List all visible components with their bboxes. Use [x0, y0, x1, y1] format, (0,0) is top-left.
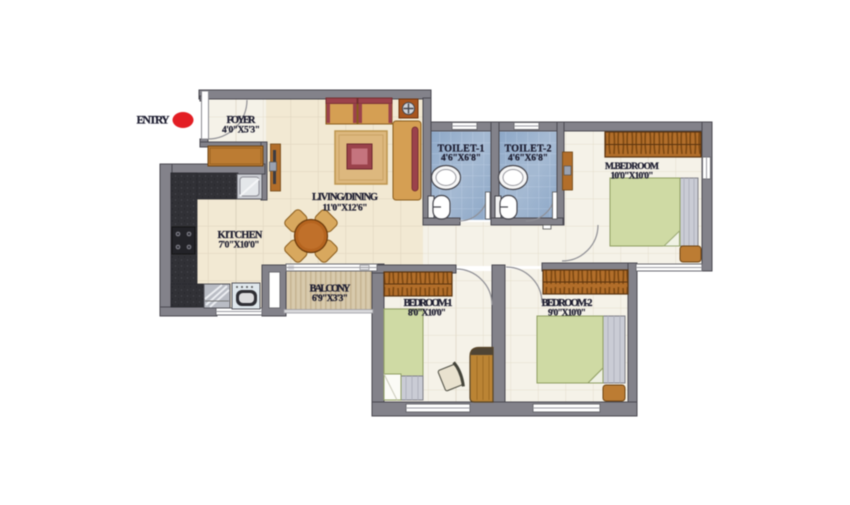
svg-text:6'9"X3'3": 6'9"X3'3"	[312, 294, 348, 304]
svg-text:BALCONY: BALCONY	[310, 284, 351, 295]
svg-text:BEDROOM-1: BEDROOM-1	[404, 298, 453, 309]
svg-text:LIVING/DINING: LIVING/DINING	[312, 192, 378, 203]
svg-text:M.BEDROOM: M.BEDROOM	[605, 162, 659, 172]
svg-text:9'0"X10'0": 9'0"X10'0"	[548, 309, 586, 319]
svg-text:BEDROOM-2: BEDROOM-2	[542, 298, 593, 309]
svg-text:7'0"X10'0": 7'0"X10'0"	[219, 241, 260, 251]
svg-text:ENTRY: ENTRY	[137, 115, 171, 127]
svg-text:8'0"X10'0": 8'0"X10'0"	[408, 309, 446, 319]
svg-text:KITCHEN: KITCHEN	[218, 230, 263, 241]
svg-text:11'0"X12'6": 11'0"X12'6"	[323, 204, 368, 214]
svg-text:10'0"X10'0": 10'0"X10'0"	[611, 172, 654, 182]
svg-text:4'6"X6'8": 4'6"X6'8"	[441, 154, 481, 164]
svg-text:4'0"X5'3": 4'0"X5'3"	[222, 126, 260, 136]
svg-text:FOYER: FOYER	[227, 115, 256, 126]
svg-text:4'6"X6'8": 4'6"X6'8"	[508, 154, 548, 164]
